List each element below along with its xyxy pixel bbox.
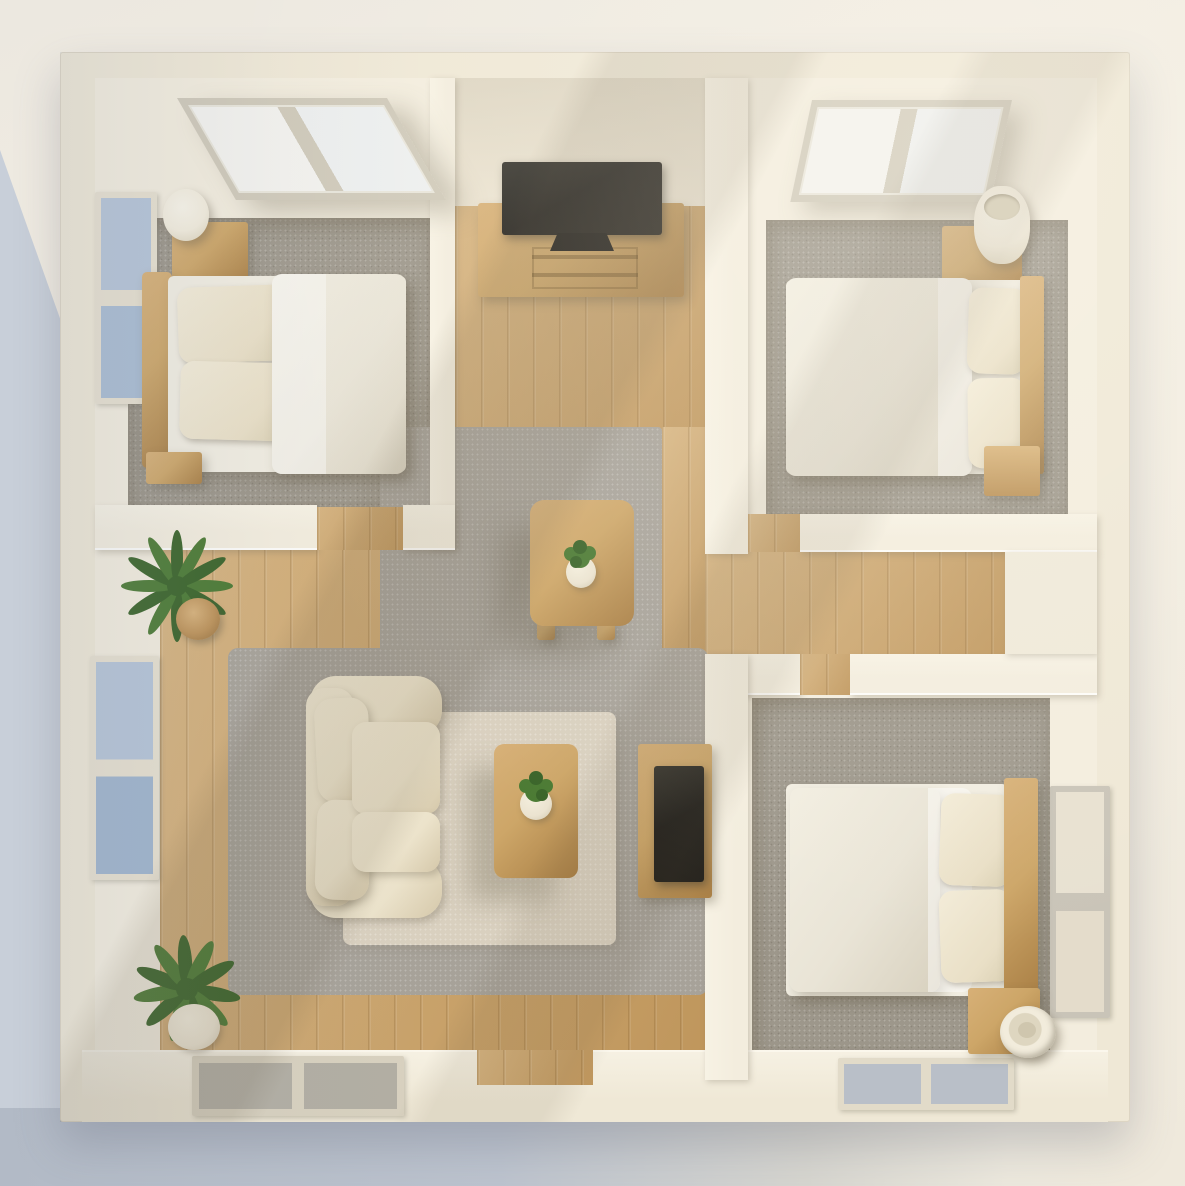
wall-bedroomTL-nook (430, 78, 455, 548)
bed-headboard-top-right (1020, 276, 1044, 474)
sofa-seat-cushion-2 (352, 812, 440, 872)
floor-plan-render (0, 0, 1185, 1186)
pillow-bottom-right-1 (938, 793, 1013, 887)
wall-window-right-bedroomBR (1050, 786, 1110, 1018)
right-hallway-wood-floor (705, 552, 1005, 654)
entry-doorway-recess (477, 1050, 593, 1085)
wall-bedroomBR-north-right (850, 654, 1097, 695)
pillow-bottom-right-2 (938, 889, 1013, 983)
floor-window-bottom-left (192, 1056, 404, 1116)
fern-plant-pot (168, 1004, 220, 1050)
doorway-bedroomBR (800, 654, 850, 695)
tv-stand (550, 233, 614, 251)
tv-console-drawers (532, 247, 638, 289)
sofa-seat-cushion-1 (352, 722, 440, 814)
cylinder-lamp-top-right (974, 186, 1030, 264)
wall-window-left-lower (90, 656, 159, 880)
skylight-window-top-right (790, 100, 1012, 202)
doorway-bedroomTL (317, 507, 403, 550)
cylinder-lamp-inner (1018, 1022, 1036, 1038)
palm-plant (112, 524, 242, 648)
table-lamp-top-left (163, 189, 209, 241)
cube-side-table-top-right (984, 446, 1040, 496)
duvet-fold-top-left (272, 274, 326, 474)
wall-bedroomTR-south (800, 514, 1097, 552)
floor-window-bottom-right (838, 1058, 1014, 1110)
tv-screen (502, 162, 662, 235)
doorway-bedroomTR (748, 514, 800, 552)
dining-table-plant (556, 532, 604, 580)
center-right-wood-strip (662, 427, 705, 657)
bed-footrail-top-left (146, 452, 202, 484)
bed-headboard-bottom-right (1004, 778, 1038, 1000)
pillow-top-right-1 (967, 287, 1028, 375)
cylinder-lamp-bottom-right (1000, 1006, 1056, 1058)
duvet-bottom-right (790, 788, 940, 992)
cylinder-lamp-opening (984, 194, 1020, 220)
duvet-fold-top-right (938, 278, 972, 476)
wall-nook-bedroomTR (705, 78, 748, 554)
palm-plant-pot (176, 598, 220, 640)
wall-bedroomTL-south-right (403, 505, 455, 550)
media-sideboard-screen (654, 766, 704, 882)
coffee-table-plant (510, 762, 562, 814)
right-hallway-end-wall (1005, 552, 1097, 654)
